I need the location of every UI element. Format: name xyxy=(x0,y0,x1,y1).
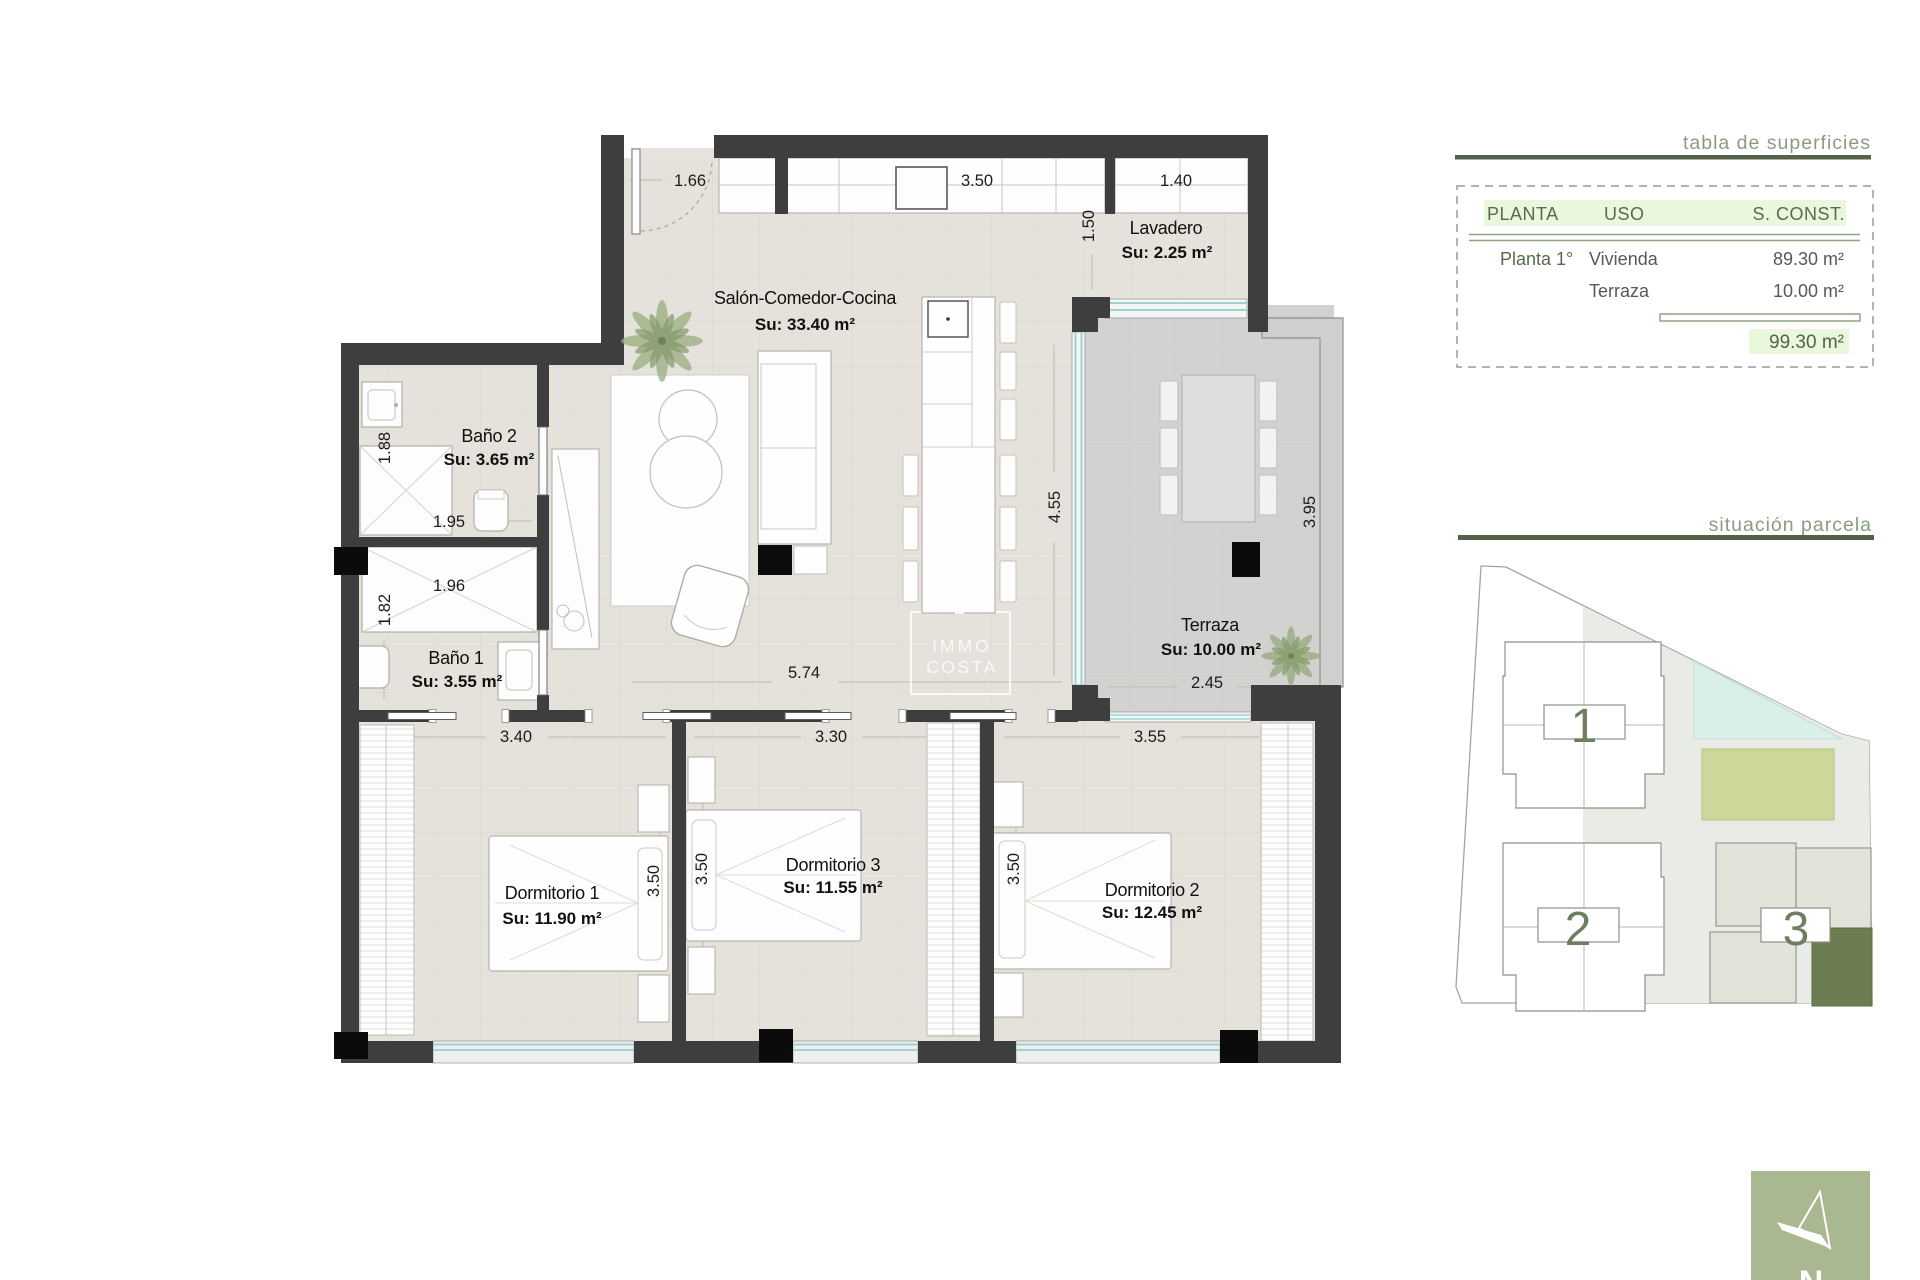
svg-text:tabla de superficies: tabla de superficies xyxy=(1683,132,1871,154)
svg-text:Dormitorio 1: Dormitorio 1 xyxy=(505,883,600,903)
svg-text:Su: 2.25 m²: Su: 2.25 m² xyxy=(1122,243,1213,262)
svg-text:1.95: 1.95 xyxy=(433,513,465,531)
svg-text:Su: 33.40 m²: Su: 33.40 m² xyxy=(755,315,855,334)
svg-text:Su: 3.65 m²: Su: 3.65 m² xyxy=(444,450,535,469)
svg-text:3.40: 3.40 xyxy=(500,728,532,746)
svg-text:3.30: 3.30 xyxy=(815,728,847,746)
svg-text:situación parcela: situación parcela xyxy=(1709,514,1872,536)
svg-text:Baño 2: Baño 2 xyxy=(461,426,517,446)
svg-text:Dormitorio 3: Dormitorio 3 xyxy=(786,855,881,875)
svg-text:3.50: 3.50 xyxy=(961,172,993,190)
svg-text:S. CONST.: S. CONST. xyxy=(1752,204,1845,224)
svg-text:Su: 3.55 m²: Su: 3.55 m² xyxy=(412,672,503,691)
svg-text:Dormitorio 2: Dormitorio 2 xyxy=(1105,880,1200,900)
svg-text:3.50: 3.50 xyxy=(1005,853,1023,885)
svg-text:3.50: 3.50 xyxy=(693,853,711,885)
svg-text:3: 3 xyxy=(1783,903,1810,956)
svg-text:1.82: 1.82 xyxy=(376,594,394,626)
svg-text:IMMO: IMMO xyxy=(932,636,992,656)
svg-text:1.66: 1.66 xyxy=(674,172,706,190)
svg-text:2.45: 2.45 xyxy=(1191,674,1223,692)
svg-text:Su: 12.45 m²: Su: 12.45 m² xyxy=(1102,903,1202,922)
svg-text:5.74: 5.74 xyxy=(788,664,820,682)
svg-text:Terraza: Terraza xyxy=(1181,615,1240,635)
svg-text:3.55: 3.55 xyxy=(1134,728,1166,746)
svg-text:1: 1 xyxy=(1571,700,1598,753)
svg-text:1.40: 1.40 xyxy=(1160,172,1192,190)
svg-text:COSTA: COSTA xyxy=(926,657,998,677)
svg-text:Su: 10.00 m²: Su: 10.00 m² xyxy=(1161,640,1261,659)
svg-text:1.88: 1.88 xyxy=(376,432,394,464)
svg-text:99.30 m²: 99.30 m² xyxy=(1769,332,1844,353)
svg-text:3.50: 3.50 xyxy=(645,865,663,897)
svg-text:1.50: 1.50 xyxy=(1080,210,1098,242)
svg-text:Planta 1°: Planta 1° xyxy=(1500,249,1573,269)
svg-text:Su: 11.55 m²: Su: 11.55 m² xyxy=(783,878,883,897)
svg-text:Terraza: Terraza xyxy=(1589,281,1650,301)
svg-text:2: 2 xyxy=(1565,903,1592,956)
svg-text:N: N xyxy=(1799,1264,1824,1280)
svg-text:1.96: 1.96 xyxy=(433,577,465,595)
svg-text:10.00 m²: 10.00 m² xyxy=(1773,281,1844,301)
svg-text:Lavadero: Lavadero xyxy=(1130,218,1203,238)
svg-text:4.55: 4.55 xyxy=(1046,491,1064,523)
svg-text:Baño 1: Baño 1 xyxy=(428,648,484,668)
svg-text:USO: USO xyxy=(1604,204,1645,224)
svg-text:3.95: 3.95 xyxy=(1301,496,1319,528)
svg-text:Salón-Comedor-Cocina: Salón-Comedor-Cocina xyxy=(714,288,897,308)
svg-text:PLANTA: PLANTA xyxy=(1487,204,1559,224)
svg-text:89.30 m²: 89.30 m² xyxy=(1773,249,1844,269)
svg-text:Vivienda: Vivienda xyxy=(1589,249,1659,269)
svg-text:Su: 11.90 m²: Su: 11.90 m² xyxy=(502,909,602,928)
